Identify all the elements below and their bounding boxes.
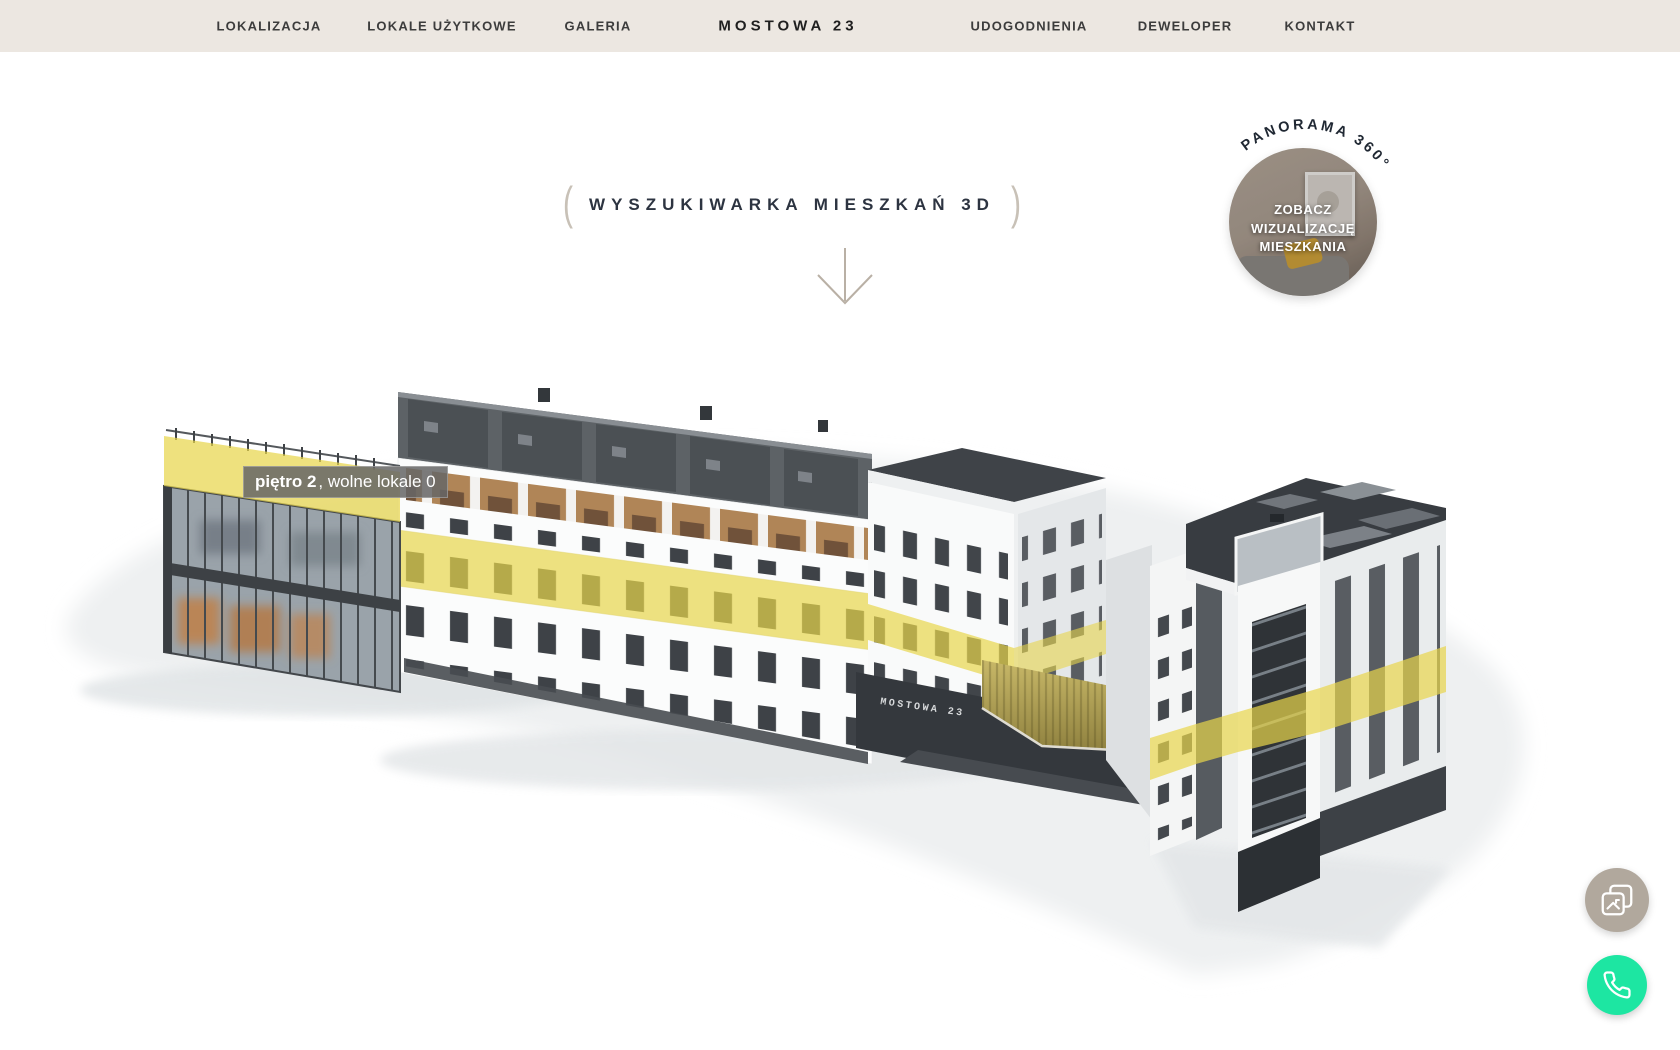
panorama-360-badge[interactable]: ZOBACZ WIZUALIZACJĘ MIESZKANIA <box>1229 148 1377 296</box>
gallery-button[interactable] <box>1585 868 1649 932</box>
building-3d-view[interactable]: MOSTOWA 23 <box>0 320 1680 1020</box>
floor-tooltip: piętro 2 , wolne lokale 0 <box>243 466 448 498</box>
brand-logo[interactable]: MOSTOWA 23 <box>718 18 857 35</box>
heading-paren-open: ( <box>563 182 573 229</box>
section-heading: ( WYSZUKIWARKA MIESZKAŃ 3D ) <box>607 190 977 220</box>
building-render[interactable]: MOSTOWA 23 <box>0 320 1680 1020</box>
nav-item-kontakt[interactable]: KONTAKT <box>1285 19 1356 34</box>
nav-item-lokalizacja[interactable]: LOKALIZACJA <box>217 19 322 34</box>
badge-cta-line1: ZOBACZ <box>1274 201 1332 220</box>
nav-item-deweloper[interactable]: DEWELOPER <box>1138 19 1233 34</box>
badge-cta-line2: WIZUALIZACJĘ <box>1251 220 1355 239</box>
floor-tooltip-availability: , wolne lokale 0 <box>318 472 435 492</box>
phone-icon <box>1602 970 1632 1000</box>
scroll-down-arrow-icon <box>817 248 873 312</box>
page-title: WYSZUKIWARKA MIESZKAŃ 3D <box>589 195 995 215</box>
nav-item-lokale-uzytkowe[interactable]: LOKALE UŻYTKOWE <box>367 19 516 34</box>
heading-paren-close: ) <box>1011 182 1021 229</box>
nav-item-galeria[interactable]: GALERIA <box>565 19 632 34</box>
nav-item-udogodnienia[interactable]: UDOGODNIENIA <box>971 19 1088 34</box>
badge-cta-text: ZOBACZ WIZUALIZACJĘ MIESZKANIA <box>1229 148 1377 296</box>
top-navigation: LOKALIZACJA LOKALE UŻYTKOWE GALERIA MOST… <box>0 0 1680 52</box>
phone-button[interactable] <box>1587 955 1647 1015</box>
badge-cta-line3: MIESZKANIA <box>1260 238 1347 257</box>
page: LOKALIZACJA LOKALE UŻYTKOWE GALERIA MOST… <box>0 0 1680 1050</box>
floor-tooltip-floor: piętro 2 <box>255 472 316 492</box>
stacked-photos-icon <box>1598 881 1636 919</box>
